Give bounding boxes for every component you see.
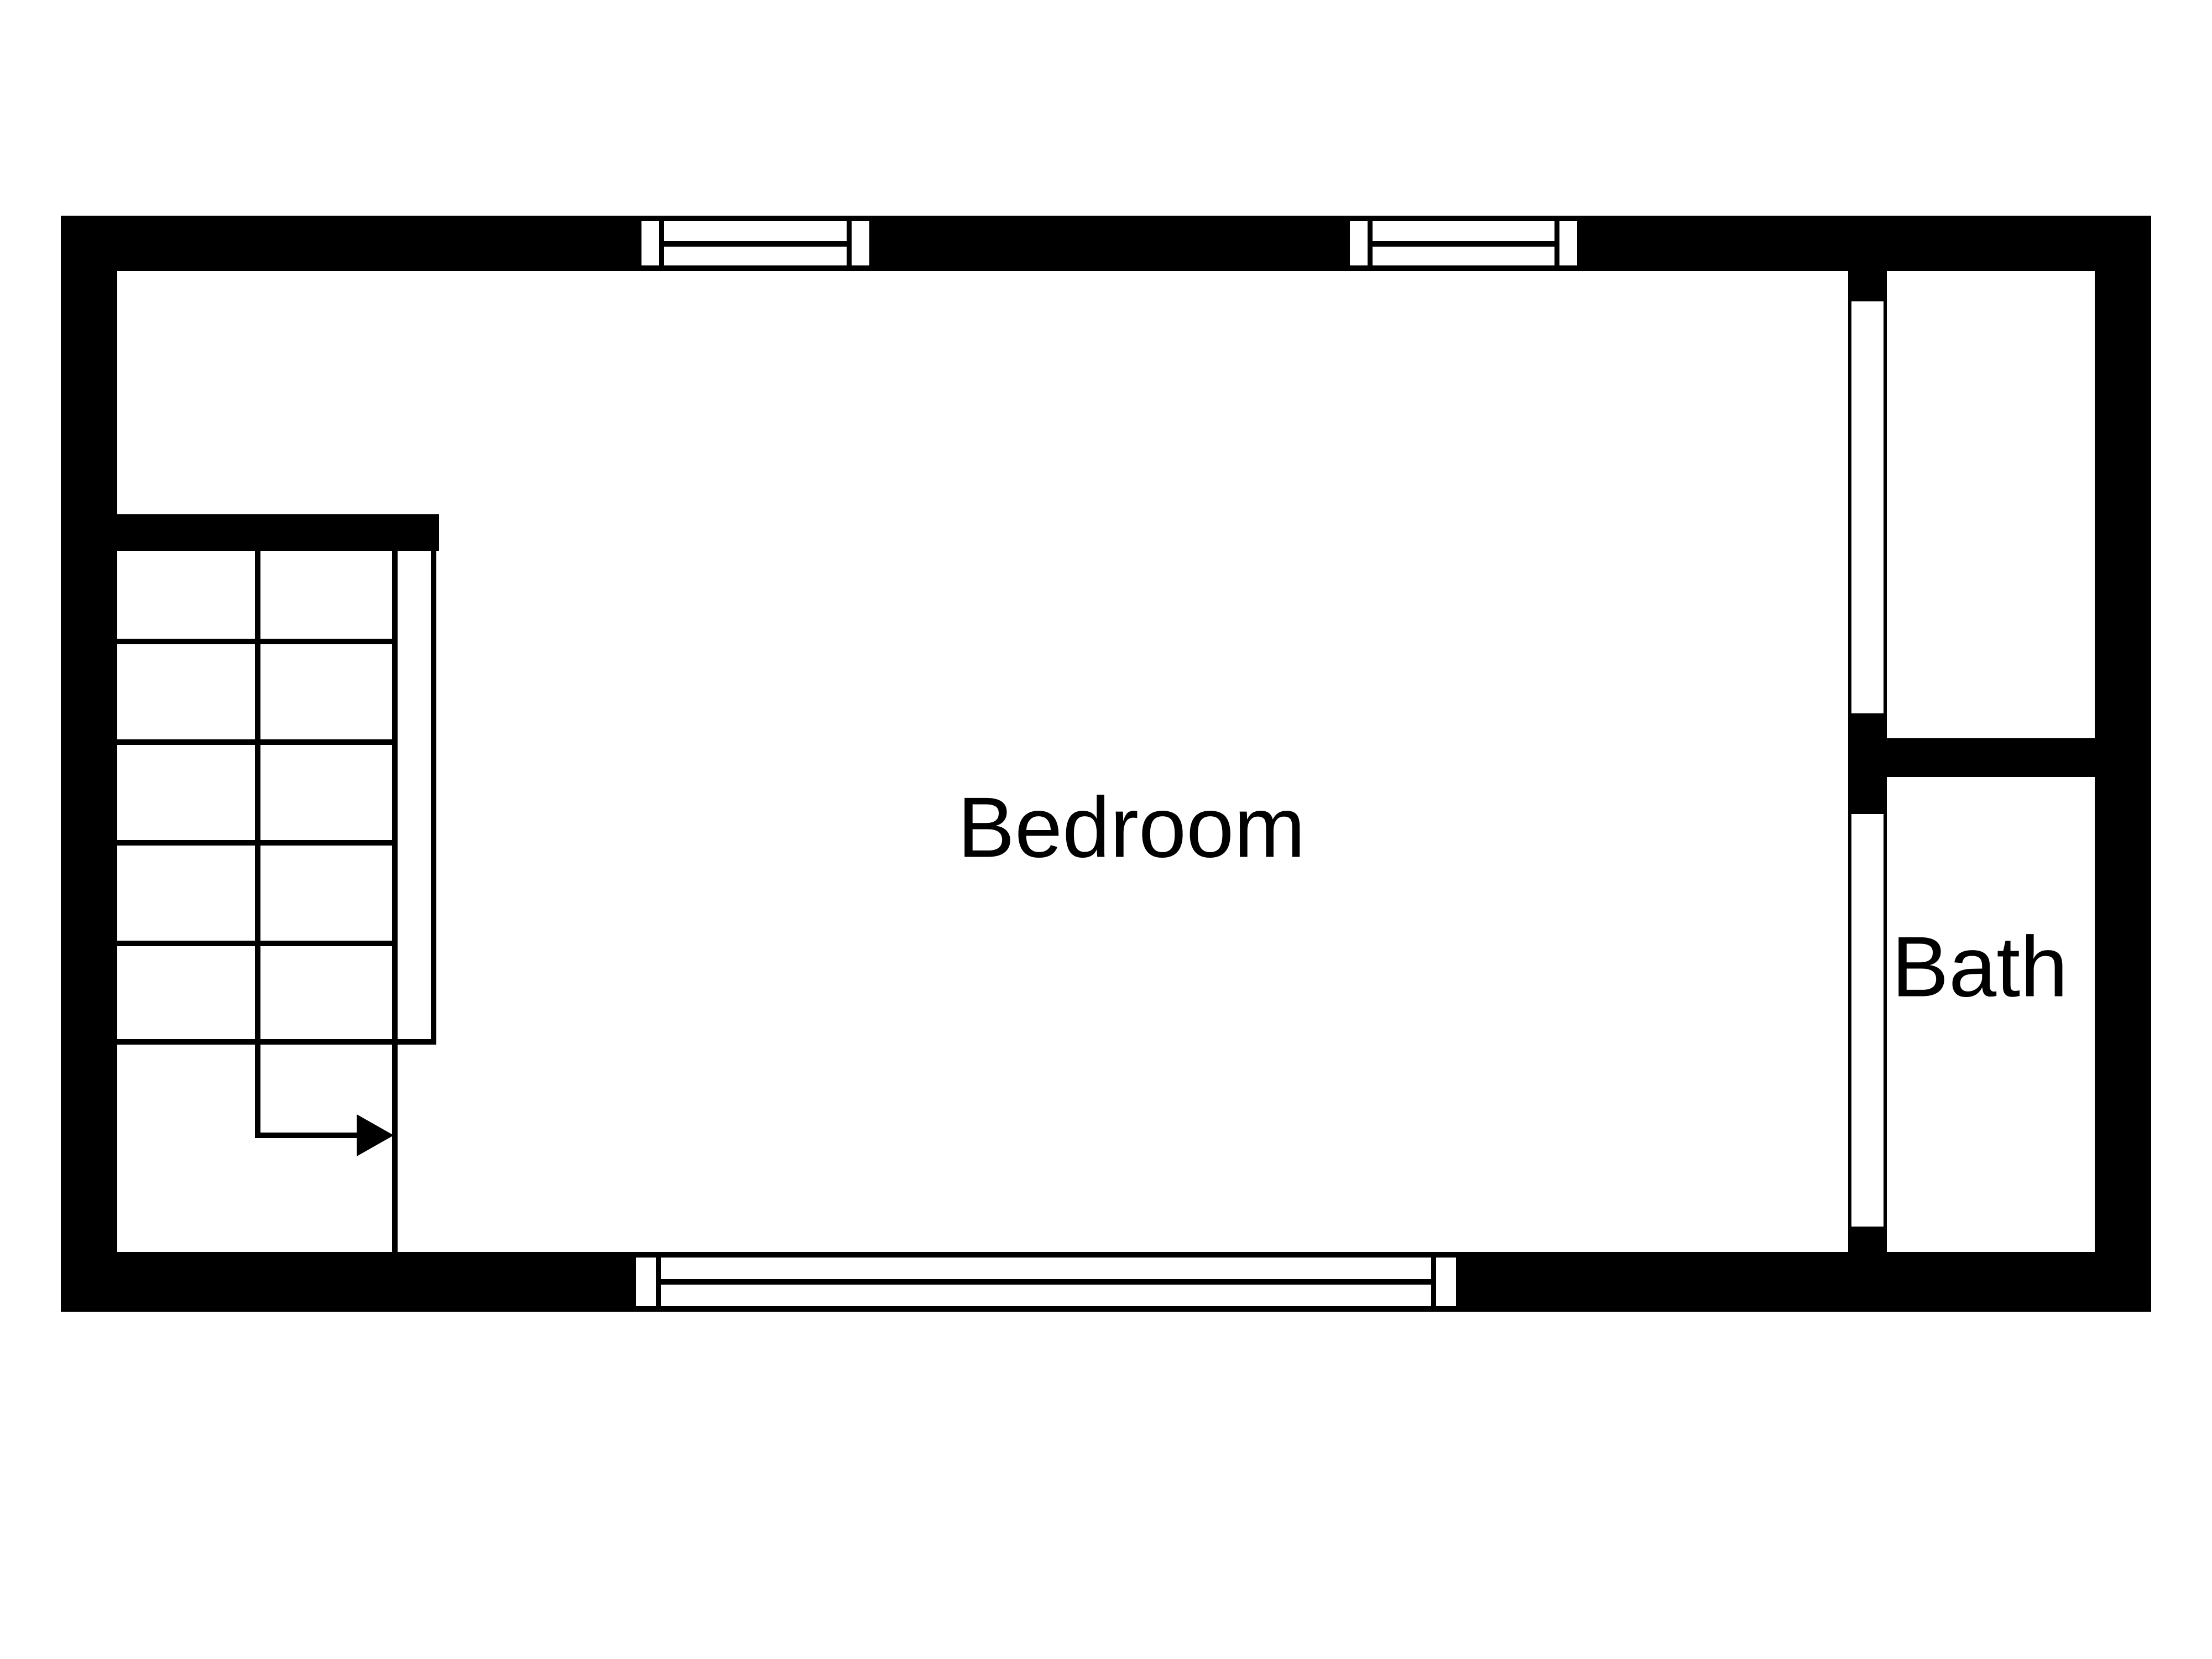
exterior-wall-top-left-segment — [61, 216, 636, 271]
exterior-wall-top-mid-segment — [875, 216, 1344, 271]
door-opening-edge-line-left — [1848, 301, 1851, 1227]
window-jamb-line-right — [847, 221, 852, 265]
window-jamb-line-left — [656, 1258, 661, 1306]
divider-wall-stub-bottom — [1848, 1227, 1887, 1252]
bedroom-room — [117, 271, 1848, 1252]
exterior-wall-right — [2095, 216, 2151, 1312]
divider-wall-stub-middle — [1848, 713, 1887, 814]
window-jamb-line-right — [1431, 1258, 1436, 1306]
window-mullion — [661, 1279, 1431, 1285]
room-label-bath: Bath — [1892, 924, 2068, 1010]
exterior-wall-left — [61, 216, 117, 1312]
window-top-right — [1344, 216, 1583, 271]
window-jamb-line-left — [1368, 221, 1373, 265]
window-mullion — [1373, 241, 1554, 247]
window-bottom — [630, 1252, 1462, 1312]
room-label-bedroom: Bedroom — [958, 785, 1306, 870]
window-jamb-line-right — [1554, 221, 1559, 265]
exterior-wall-top-right-segment — [1583, 216, 2151, 271]
bath-partition-wall — [1887, 738, 2095, 777]
window-jamb-line-left — [659, 221, 664, 265]
divider-wall-stub-top — [1848, 271, 1887, 301]
floor-plan: Bedroom Bath — [0, 0, 2212, 1659]
window-top-left — [636, 216, 875, 271]
bath-room — [1887, 777, 2095, 1252]
exterior-wall-bottom-left-segment — [61, 1252, 630, 1312]
exterior-wall-bottom-right-segment — [1462, 1252, 2151, 1312]
window-mullion — [664, 241, 847, 247]
